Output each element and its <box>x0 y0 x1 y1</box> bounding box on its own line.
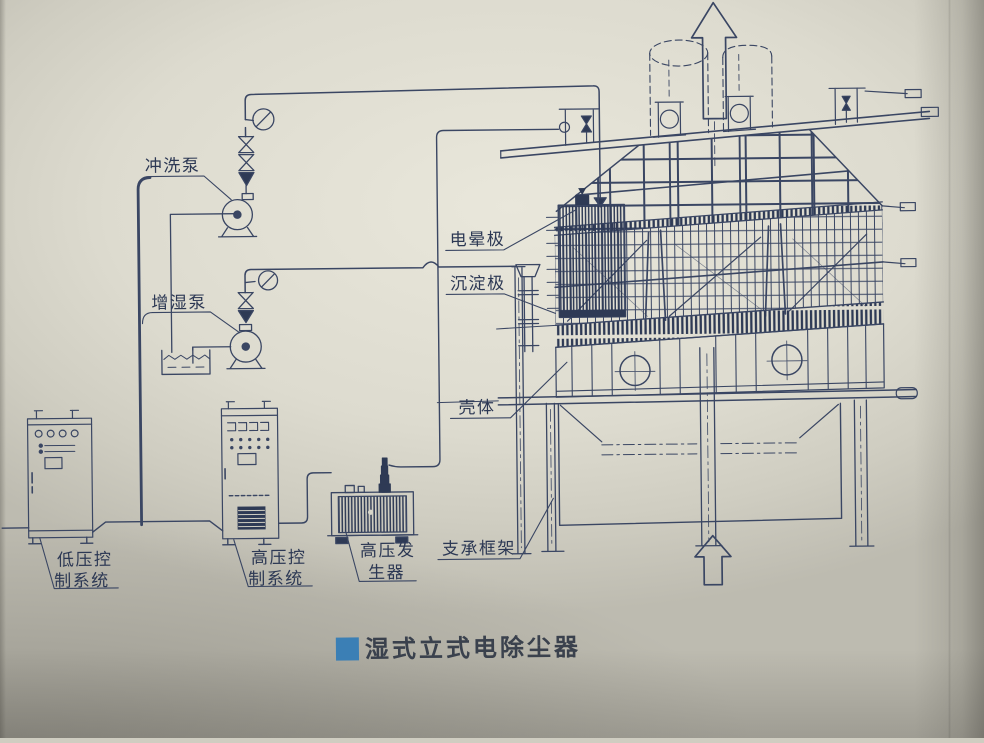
flush-pump <box>218 193 256 236</box>
pressure-gauge-icon <box>245 109 274 130</box>
collecting-electrode-label: 沉淀极 <box>450 274 506 295</box>
hv-control-label-line2: 制系统 <box>248 569 304 590</box>
labels: 冲洗泵 增湿泵 电晕极 沉淀极 壳体 支承框架 低压控 制系统 高压控 制系统 … <box>50 153 517 592</box>
gas-outlet-arrow <box>691 2 737 118</box>
support-frame-label: 支承框架 <box>442 539 516 560</box>
lv-control-label-line1: 低压控 <box>57 550 113 571</box>
corona-electrode-label: 电晕极 <box>450 230 506 251</box>
caption-text: 湿式立式电除尘器 <box>365 633 581 663</box>
flush-pump-label: 冲洗泵 <box>145 156 201 177</box>
lv-control-cabinet <box>27 410 92 544</box>
gate-valve-icon <box>239 136 254 170</box>
flush-pipe <box>245 86 600 202</box>
power-wiring <box>0 129 563 533</box>
pressure-gauge-icon <box>245 271 278 290</box>
gate-valve-icon <box>238 292 253 308</box>
platform-beam <box>437 388 917 406</box>
flush-suction-pipe <box>170 214 235 353</box>
humidify-pump-leader <box>142 312 239 334</box>
gas-inlet-arrow <box>695 536 732 585</box>
caption-marker <box>336 637 359 660</box>
flanged-pipe <box>516 264 541 351</box>
manhole-left <box>615 351 655 390</box>
hv-control-cabinet <box>221 401 278 545</box>
lv-control-label-line2: 制系统 <box>54 571 110 592</box>
photo-page: 冲洗泵 增湿泵 电晕极 沉淀极 壳体 支承框架 低压控 制系统 高压控 制系统 … <box>0 0 984 738</box>
manhole-right <box>767 341 807 380</box>
humidify-pump <box>227 324 265 368</box>
insulator-pedestal-left <box>653 60 686 137</box>
humidify-pump-label: 增湿泵 <box>151 293 207 314</box>
hv-entry-box <box>559 109 599 145</box>
flush-pump-leader <box>138 176 231 201</box>
flush-pump-circuit <box>169 86 608 353</box>
check-valve-icon <box>238 310 253 322</box>
hv-control-label-line1: 高压控 <box>251 548 307 569</box>
figure-caption: 湿式立式电除尘器 <box>336 633 581 664</box>
esp-system-diagram: 冲洗泵 增湿泵 电晕极 沉淀极 壳体 支承框架 低压控 制系统 高压控 制系统 … <box>0 0 984 743</box>
shell-label: 壳体 <box>458 398 495 418</box>
hv-generator-label-line2: 生器 <box>368 563 405 583</box>
insulator-pedestal-right <box>723 54 756 131</box>
water-tank <box>162 347 210 375</box>
humidify-suction-pipe <box>193 347 231 363</box>
bushing-icon <box>379 458 390 492</box>
hv-generator-label-line1: 高压发 <box>360 541 416 562</box>
hv-generator <box>327 458 418 544</box>
collecting-leader <box>446 293 555 314</box>
check-valve-icon <box>239 172 254 185</box>
drain-pipe <box>138 178 154 525</box>
